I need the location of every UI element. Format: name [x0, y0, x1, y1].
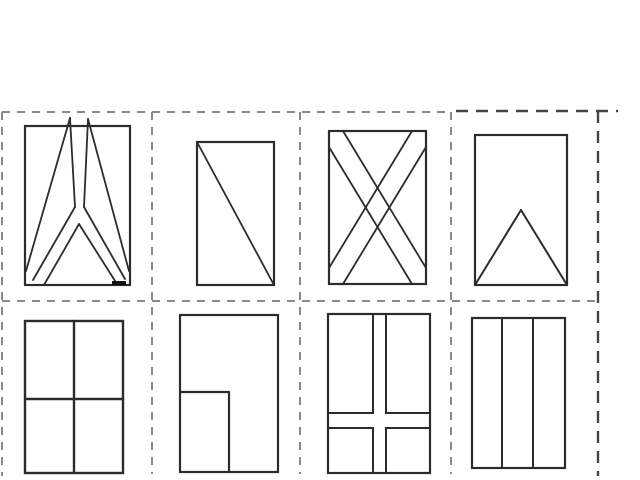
- flag-card-triangle-line-2: [521, 210, 567, 285]
- flag-card-nordic-cross-panel-3: [328, 428, 373, 473]
- flag-card-split-y: [25, 118, 130, 285]
- flag-card-nordic-cross: [328, 314, 430, 473]
- flag-card-triangle-line-1: [475, 210, 521, 285]
- flag-card-corner-box: [180, 315, 278, 472]
- flag-card-saltire: [329, 131, 426, 284]
- flag-card-three-stripes: [472, 318, 565, 468]
- flag-patterns-worksheet-canvas: [0, 0, 640, 480]
- flag-card-saltire-outline: [329, 131, 426, 284]
- flag-card-nordic-cross-panel-2: [386, 314, 430, 413]
- flag-card-nordic-cross-panel-1: [328, 314, 373, 413]
- flag-card-nordic-cross-outline: [328, 314, 430, 473]
- flag-card-nordic-cross-panel-4: [386, 428, 430, 473]
- flag-card-diagonal: [197, 142, 274, 285]
- flag-card-split-y-line-2: [70, 118, 75, 207]
- flag-card-diagonal-line-1: [197, 142, 274, 285]
- flag-card-split-y-line-7: [44, 224, 79, 285]
- flag-card-triangle: [475, 135, 567, 285]
- flag-card-saltire-line-4: [343, 147, 426, 284]
- flag-card-three-stripes-outline: [472, 318, 565, 468]
- flag-card-split-y-line-3: [84, 119, 88, 207]
- flag-card-saltire-line-1: [343, 131, 426, 268]
- flag-card-split-y-line-1: [26, 118, 70, 271]
- flag-card-saltire-line-3: [329, 131, 412, 268]
- flag-card-quadrants: [25, 321, 123, 473]
- flag-card-saltire-line-2: [329, 147, 412, 284]
- worksheet-page: [0, 0, 640, 480]
